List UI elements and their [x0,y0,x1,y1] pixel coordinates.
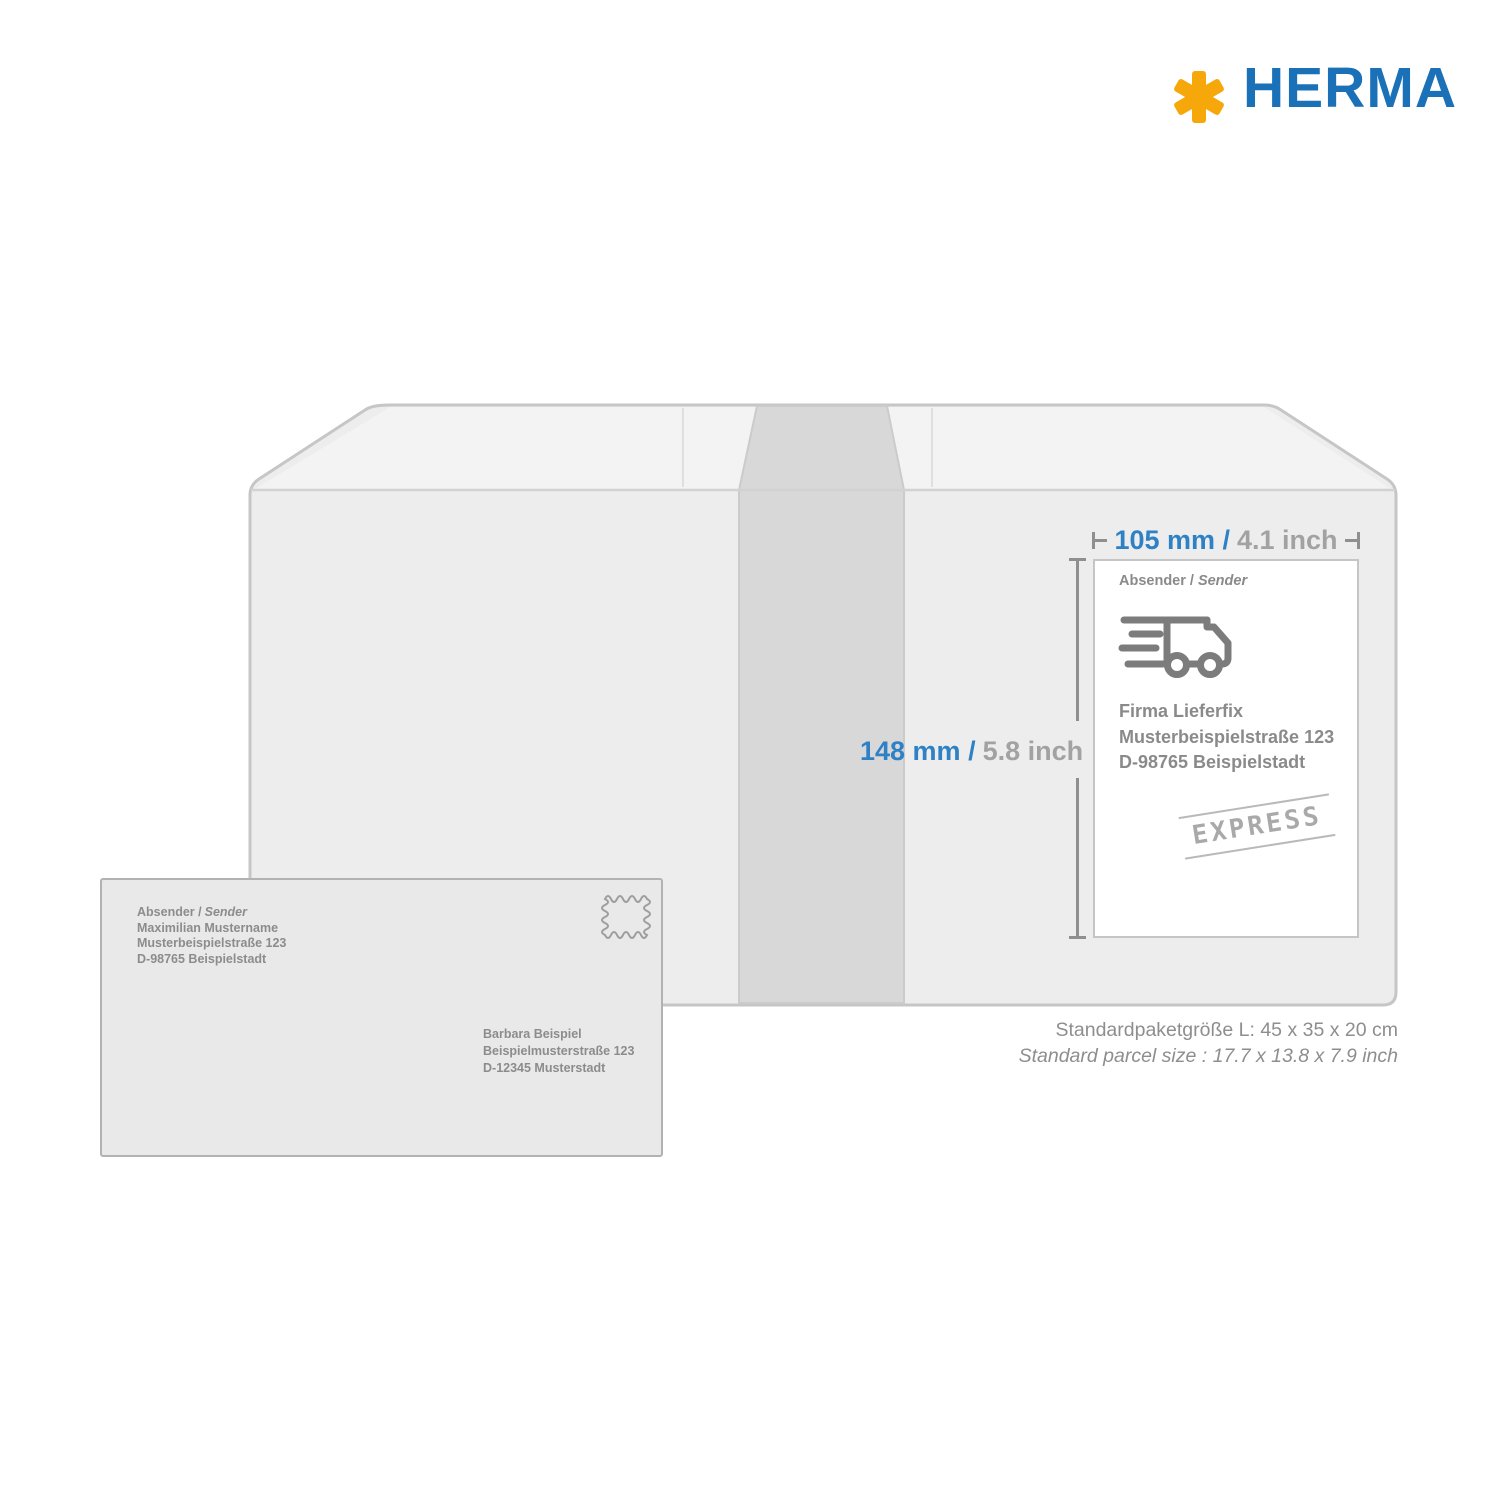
height-value-imperial: 5.8 inch [983,736,1084,766]
width-dimension-text: 105 mm /4.1 inch [1114,526,1337,554]
label-address-block: Firma Lieferfix Musterbeispielstraße 123… [1119,699,1334,776]
envelope-recipient-block: Barbara Beispiel Beispielmusterstraße 12… [483,1026,634,1077]
label-sender-heading: Absender /Sender [1119,573,1247,589]
envelope-sender-heading-de: Absender / [137,905,202,919]
delivery-truck-icon [1115,609,1245,687]
height-dimension-text: 148 mm /5.8 inch [860,737,1082,765]
envelope-sender-block: Absender /Sender Maximilian Mustername M… [137,905,286,967]
envelope-recipient-line: D-12345 Musterstadt [483,1060,634,1077]
dimension-tick-bottom [1069,936,1086,939]
label-address-line: Musterbeispielstraße 123 [1119,725,1334,751]
label-sender-heading-en: Sender [1198,573,1247,589]
height-value-metric: 148 mm / [860,736,976,766]
dimension-line-upper [1076,561,1079,721]
envelope-sender-heading: Absender /Sender [137,905,286,921]
herma-asterisk-icon [1173,71,1225,123]
envelope-sender-line: D-98765 Beispielstadt [137,952,286,968]
label-address-line: D-98765 Beispielstadt [1119,750,1334,776]
parcel-size-line-en: Standard parcel size : 17.7 x 13.8 x 7.9… [1019,1044,1398,1070]
dimension-line-left [1095,539,1107,542]
postage-stamp-icon [599,890,653,944]
label-sender-heading-de: Absender / [1119,573,1194,589]
envelope-sender-line: Maximilian Mustername [137,921,286,937]
envelope-sender-heading-en: Sender [205,905,247,919]
parcel-size-caption: Standardpaketgröße L: 45 x 35 x 20 cm St… [1019,1018,1398,1069]
envelope: Absender /Sender Maximilian Mustername M… [100,878,663,1157]
envelope-recipient-line: Beispielmusterstraße 123 [483,1043,634,1060]
label-address-line: Firma Lieferfix [1119,699,1334,725]
width-dimension: 105 mm /4.1 inch [1092,526,1360,554]
illustration-canvas: HERMA 105 mm /4.1 inch 148 mm /5.8 inch … [0,0,1500,1500]
envelope-sender-line: Musterbeispielstraße 123 [137,936,286,952]
parcel-size-line-de: Standardpaketgröße L: 45 x 35 x 20 cm [1019,1018,1398,1044]
express-stamp: EXPRESS [1179,793,1336,859]
shipping-label: Absender /Sender Firma Lieferfix Musterb… [1093,559,1359,938]
parcel-tape [739,406,904,1003]
dimension-line-right [1345,539,1357,542]
envelope-recipient-line: Barbara Beispiel [483,1026,634,1043]
dimension-tick-right [1357,532,1360,549]
dimension-line-lower [1076,778,1079,936]
width-value-metric: 105 mm / [1114,525,1230,555]
width-value-imperial: 4.1 inch [1237,525,1338,555]
herma-brand-text: HERMA [1243,60,1457,117]
